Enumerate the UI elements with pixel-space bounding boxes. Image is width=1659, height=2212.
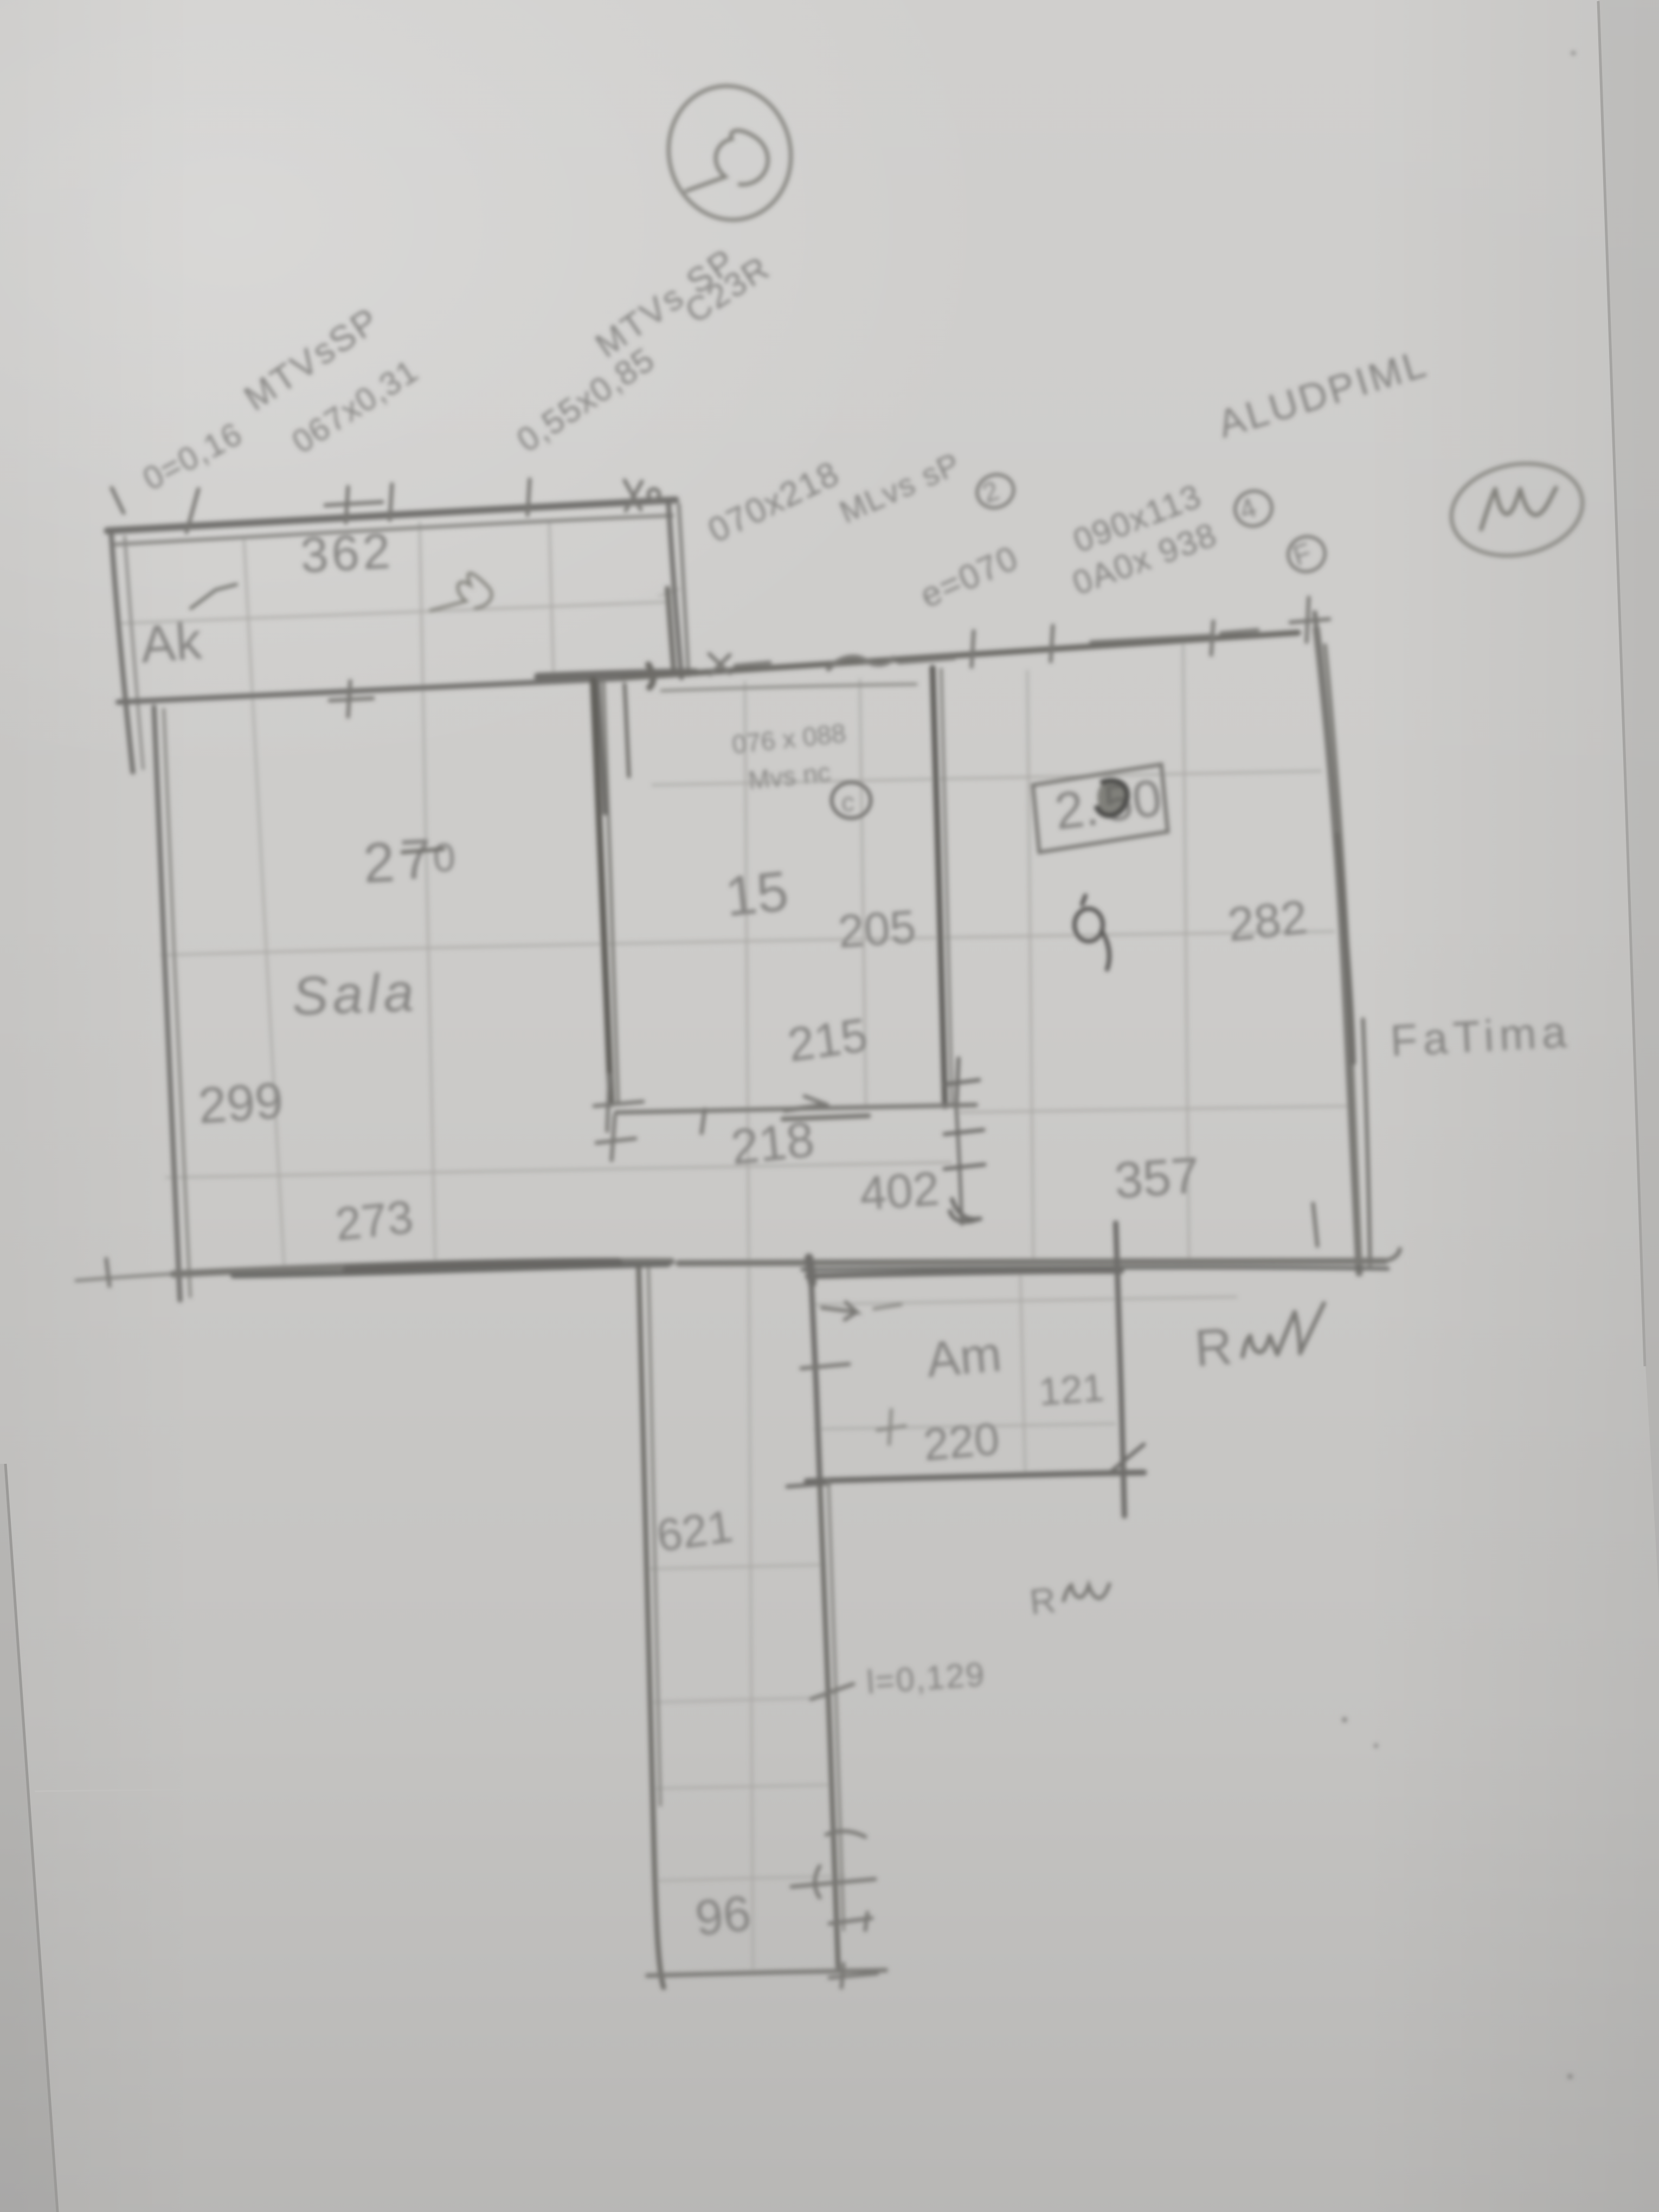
svg-text:273: 273	[333, 1191, 416, 1250]
svg-text:402: 402	[858, 1161, 941, 1220]
svg-text:0=0,16: 0=0,16	[137, 415, 249, 498]
svg-text:7: 7	[398, 827, 433, 892]
svg-text:Mvs nc: Mvs nc	[747, 758, 832, 795]
svg-text:Am: Am	[924, 1326, 1004, 1388]
svg-text:96: 96	[692, 1886, 753, 1946]
svg-text:15: 15	[722, 859, 791, 928]
svg-text:2: 2	[362, 831, 396, 895]
svg-text:MLvs sP: MLvs sP	[834, 446, 966, 530]
svg-text:Sala: Sala	[291, 962, 419, 1027]
svg-text:621: 621	[653, 1500, 736, 1561]
svg-text:0,55x0,85: 0,55x0,85	[510, 340, 661, 460]
svg-text:R: R	[1028, 1579, 1058, 1622]
svg-text:2.: 2.	[1052, 778, 1102, 841]
svg-text:362: 362	[299, 523, 395, 583]
svg-text:R: R	[1193, 1317, 1234, 1378]
svg-text:e=070: e=070	[914, 538, 1024, 615]
svg-text:FaTima: FaTima	[1389, 1007, 1573, 1066]
svg-text:218: 218	[728, 1111, 816, 1175]
svg-text:299: 299	[196, 1071, 285, 1134]
svg-text:282: 282	[1225, 890, 1310, 951]
svg-text:121: 121	[1038, 1366, 1105, 1414]
svg-text:076 x 088: 076 x 088	[731, 719, 847, 760]
svg-text:070x218: 070x218	[702, 453, 846, 550]
svg-text:0: 0	[432, 834, 456, 880]
svg-text:220: 220	[921, 1413, 1001, 1470]
svg-text:l=0,129: l=0,129	[865, 1656, 986, 1701]
svg-text:Ak: Ak	[139, 612, 204, 674]
svg-text:c: c	[841, 788, 854, 817]
svg-text:ALUDPIML: ALUDPIML	[1213, 342, 1433, 446]
svg-text:205: 205	[837, 901, 918, 958]
svg-text:215: 215	[785, 1007, 871, 1071]
svg-text:357: 357	[1113, 1146, 1201, 1209]
